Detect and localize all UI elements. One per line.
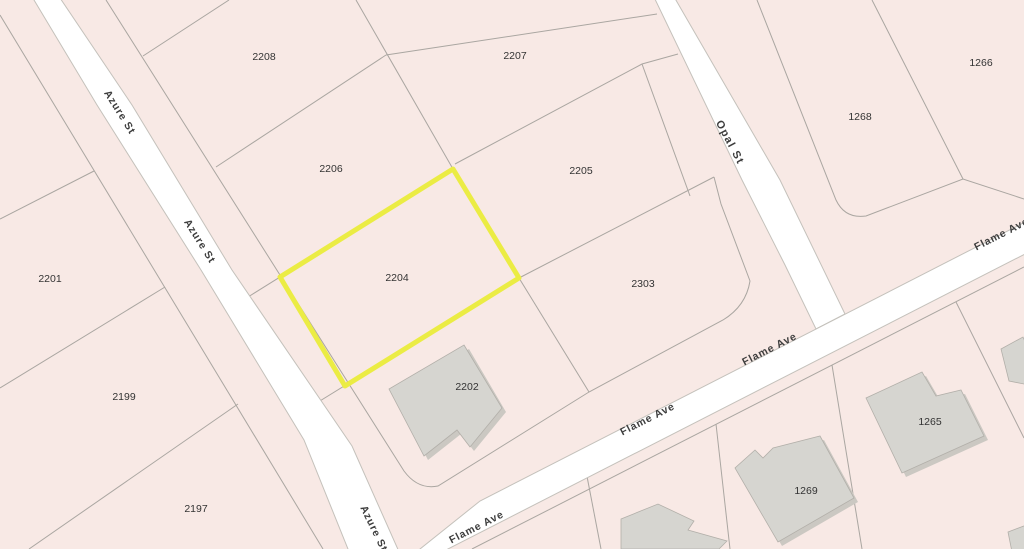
svg-text:2206: 2206: [319, 163, 343, 175]
svg-text:2207: 2207: [503, 50, 527, 62]
svg-text:2199: 2199: [112, 391, 136, 403]
svg-text:1265: 1265: [918, 416, 942, 428]
svg-text:2202: 2202: [455, 381, 479, 393]
svg-text:1266: 1266: [969, 57, 993, 69]
svg-text:2201: 2201: [38, 273, 62, 285]
svg-text:2197: 2197: [184, 503, 208, 515]
svg-text:2208: 2208: [252, 51, 276, 63]
svg-text:2205: 2205: [569, 165, 593, 177]
svg-text:1268: 1268: [848, 111, 872, 123]
svg-text:2204: 2204: [385, 272, 409, 284]
svg-text:1269: 1269: [794, 485, 818, 497]
svg-text:2303: 2303: [631, 278, 655, 290]
